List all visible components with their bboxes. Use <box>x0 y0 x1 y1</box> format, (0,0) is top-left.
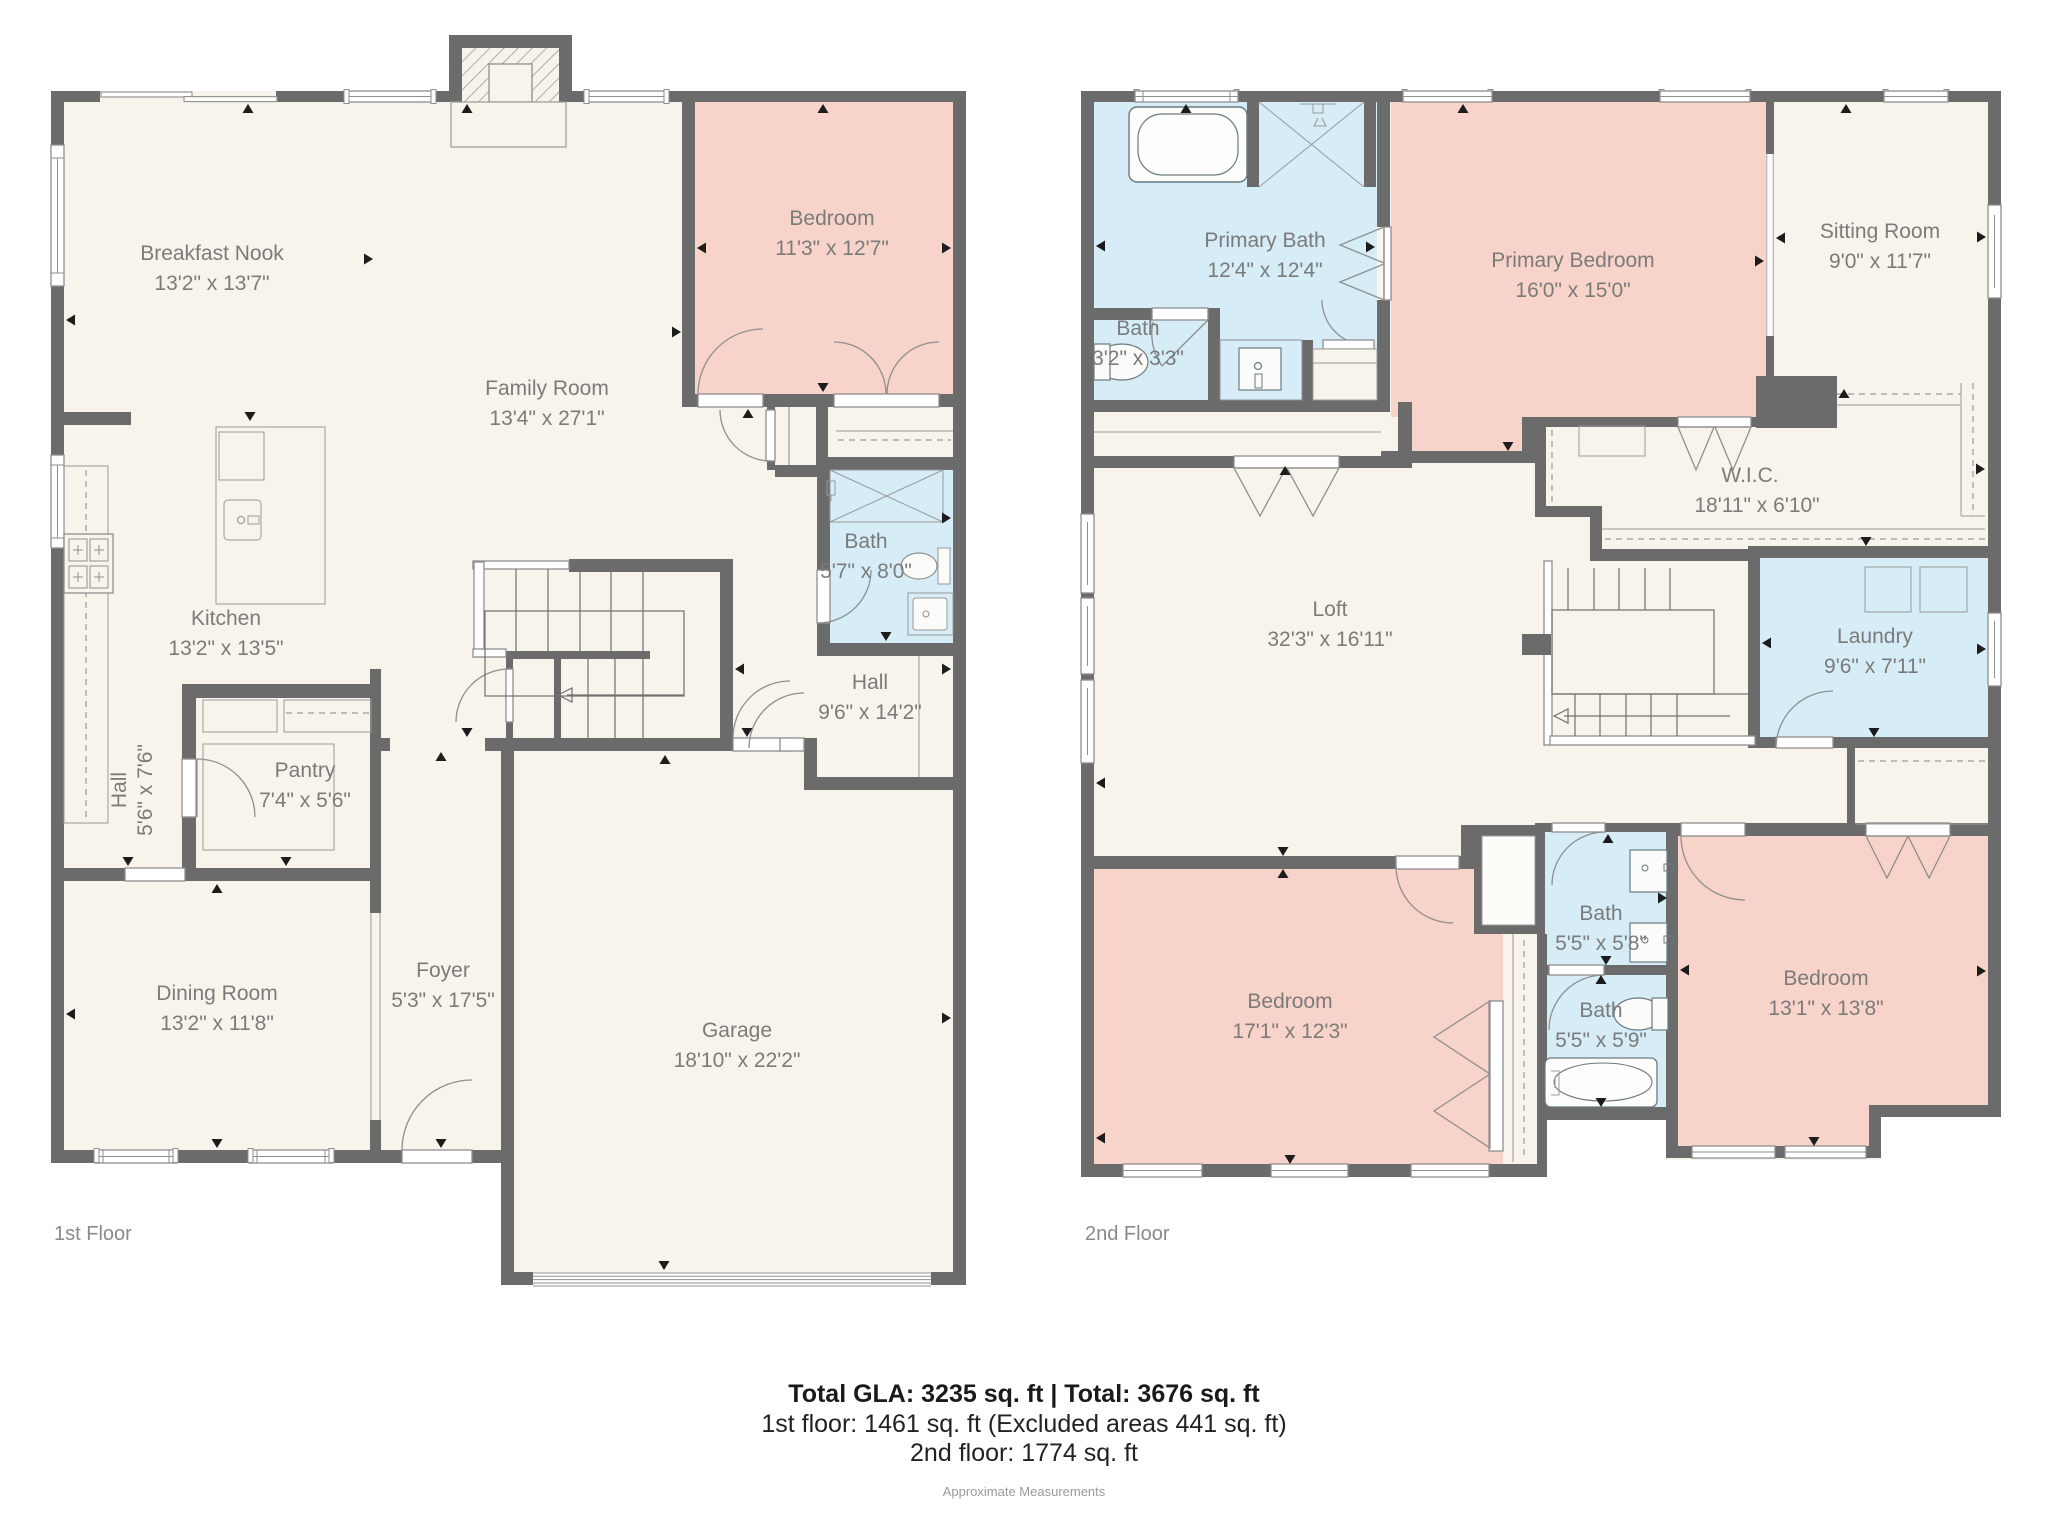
svg-text:3'2" x 3'3": 3'2" x 3'3" <box>1092 347 1184 370</box>
svg-text:18'11" x 6'10": 18'11" x 6'10" <box>1694 494 1819 517</box>
svg-text:Bath: Bath <box>1116 317 1159 340</box>
svg-text:Bedroom: Bedroom <box>789 207 874 230</box>
svg-text:Foyer: Foyer <box>416 959 470 982</box>
svg-text:Approximate Measurements: Approximate Measurements <box>943 1484 1106 1499</box>
svg-text:Bedroom: Bedroom <box>1783 967 1868 990</box>
svg-text:2nd Floor: 2nd Floor <box>1085 1223 1170 1245</box>
svg-text:Hall: Hall <box>108 772 131 808</box>
svg-text:Total GLA: 3235 sq. ft | Total: Total GLA: 3235 sq. ft | Total: 3676 sq.… <box>788 1380 1260 1408</box>
svg-text:9'0" x 11'7": 9'0" x 11'7" <box>1829 250 1931 273</box>
svg-text:Pantry: Pantry <box>275 759 336 782</box>
svg-text:13'2" x 13'5": 13'2" x 13'5" <box>168 637 283 660</box>
svg-text:13'1" x 13'8": 13'1" x 13'8" <box>1768 997 1883 1020</box>
svg-text:Primary Bath: Primary Bath <box>1204 229 1325 252</box>
svg-text:13'4" x 27'1": 13'4" x 27'1" <box>489 407 604 430</box>
svg-text:5'6" x 7'6": 5'6" x 7'6" <box>134 744 157 836</box>
svg-text:5'5" x 5'8": 5'5" x 5'8" <box>1555 932 1647 955</box>
svg-text:16'0" x 15'0": 16'0" x 15'0" <box>1515 279 1630 302</box>
svg-text:Laundry: Laundry <box>1837 625 1913 648</box>
svg-text:11'3" x 12'7": 11'3" x 12'7" <box>775 237 889 260</box>
svg-text:Hall: Hall <box>852 671 888 694</box>
svg-text:13'2" x 11'8": 13'2" x 11'8" <box>160 1012 274 1035</box>
svg-text:9'6" x 14'2": 9'6" x 14'2" <box>818 701 922 724</box>
svg-text:9'6" x 7'11": 9'6" x 7'11" <box>1824 655 1926 678</box>
svg-text:Garage: Garage <box>702 1019 772 1042</box>
svg-text:Bath: Bath <box>1579 999 1622 1022</box>
svg-text:Breakfast Nook: Breakfast Nook <box>140 242 284 265</box>
svg-text:Sitting Room: Sitting Room <box>1820 220 1940 243</box>
svg-text:1st floor: 1461 sq. ft (Exclud: 1st floor: 1461 sq. ft (Excluded areas 4… <box>761 1410 1286 1438</box>
svg-text:17'1" x 12'3": 17'1" x 12'3" <box>1232 1020 1347 1043</box>
svg-text:2nd floor: 1774 sq. ft: 2nd floor: 1774 sq. ft <box>910 1439 1138 1467</box>
svg-text:Bath: Bath <box>1579 902 1622 925</box>
svg-text:W.I.C.: W.I.C. <box>1721 464 1778 487</box>
svg-text:Dining Room: Dining Room <box>156 982 277 1005</box>
svg-text:7'4" x 5'6": 7'4" x 5'6" <box>259 789 351 812</box>
svg-text:Primary Bedroom: Primary Bedroom <box>1491 249 1654 272</box>
svg-text:5'7" x 8'0": 5'7" x 8'0" <box>820 560 912 583</box>
svg-text:13'2" x 13'7": 13'2" x 13'7" <box>154 272 269 295</box>
svg-text:Bath: Bath <box>844 530 887 553</box>
svg-text:5'3" x 17'5": 5'3" x 17'5" <box>391 989 495 1012</box>
svg-text:18'10" x 22'2": 18'10" x 22'2" <box>674 1049 801 1072</box>
svg-text:Family Room: Family Room <box>485 377 609 400</box>
svg-text:Bedroom: Bedroom <box>1247 990 1332 1013</box>
svg-text:Loft: Loft <box>1312 598 1347 621</box>
svg-text:12'4" x 12'4": 12'4" x 12'4" <box>1207 259 1322 282</box>
svg-text:32'3" x 16'11": 32'3" x 16'11" <box>1267 628 1392 651</box>
svg-text:1st Floor: 1st Floor <box>54 1223 132 1245</box>
svg-text:Kitchen: Kitchen <box>191 607 261 630</box>
svg-text:5'5" x 5'9": 5'5" x 5'9" <box>1555 1029 1647 1052</box>
